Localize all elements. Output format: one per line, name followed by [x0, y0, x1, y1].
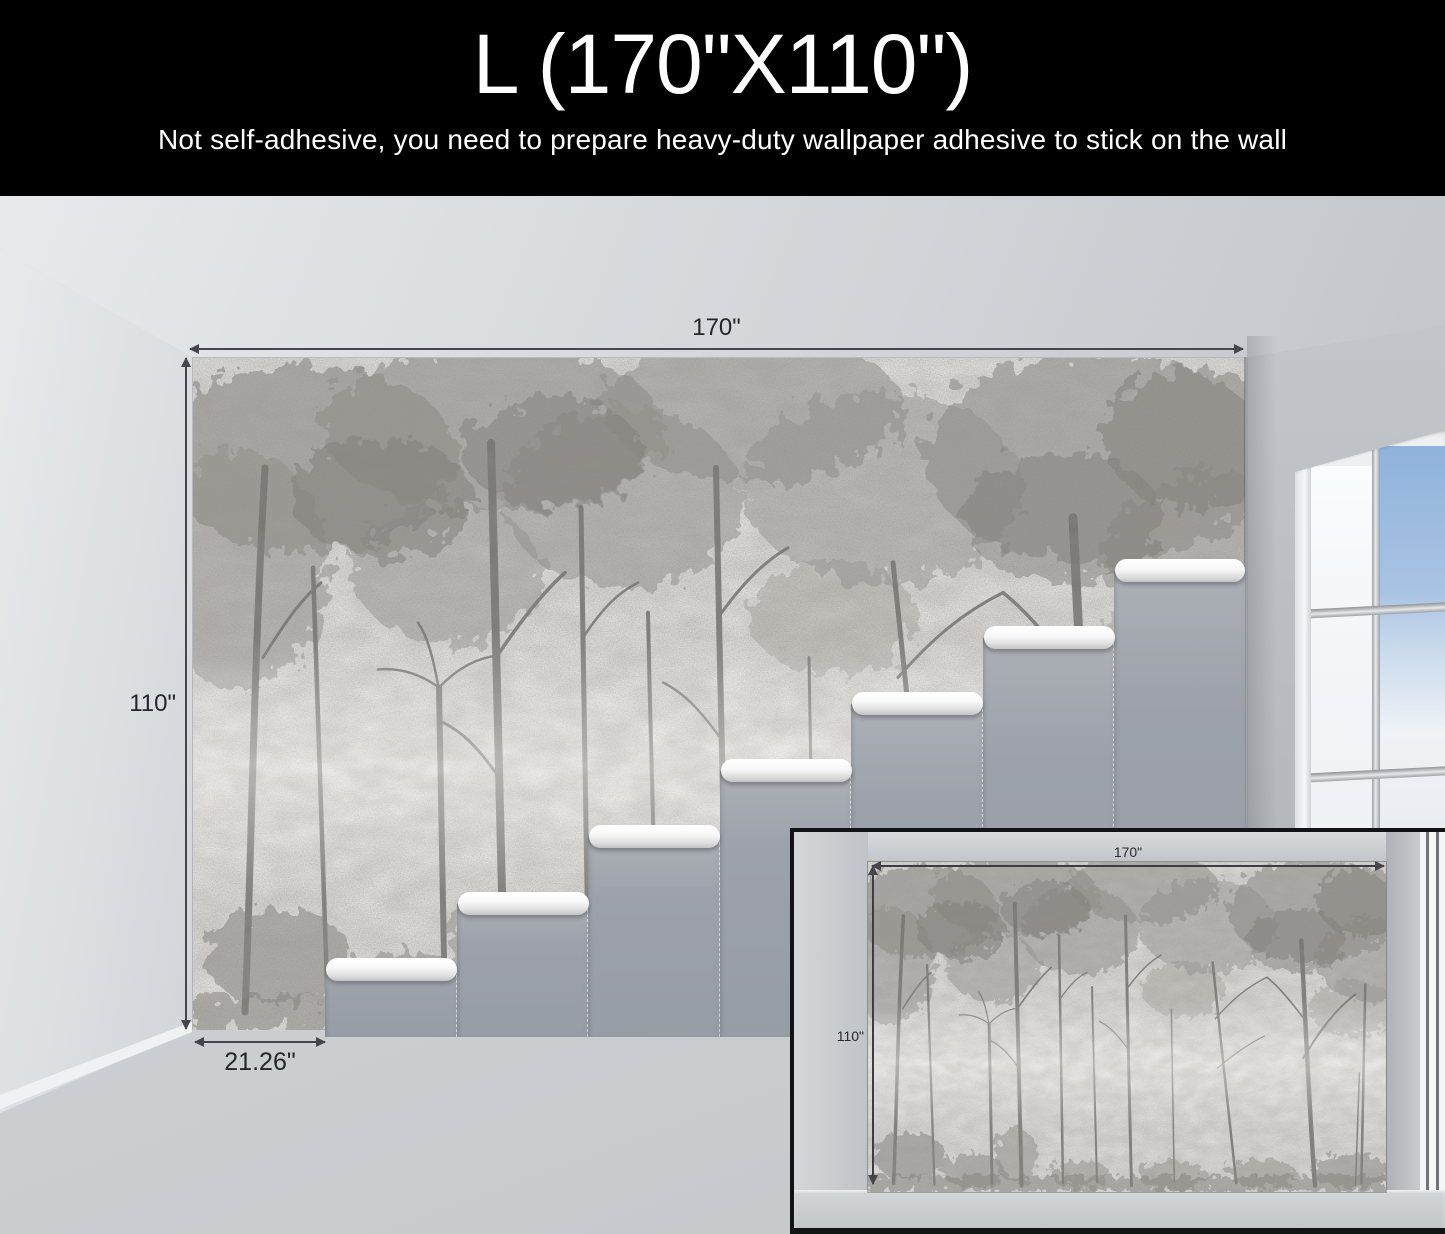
inset-window: [1420, 832, 1445, 1192]
stair-tread: [458, 892, 589, 915]
stair-tread: [589, 825, 720, 848]
inset-window-bar: [1426, 832, 1429, 1192]
window-frame-left: [1295, 466, 1311, 828]
width-dimension-line: [190, 348, 1243, 350]
inset-right-wall: [1386, 832, 1420, 1228]
stair-riser: [457, 904, 588, 1037]
inset-floor: [794, 1190, 1445, 1228]
panel-width-dimension-label: 21.26": [180, 1048, 340, 1077]
stair-tread: [1115, 559, 1245, 582]
inset-preview: 170" 110": [790, 828, 1445, 1234]
inset-height-dimension-line: [872, 866, 874, 1184]
stair-tread: [984, 626, 1115, 649]
stair-tread: [326, 958, 457, 981]
product-image: L (170"X110") Not self-adhesive, you nee…: [0, 0, 1445, 1234]
height-dimension-label: 110": [104, 690, 176, 718]
size-title: L (170"X110"): [473, 22, 973, 106]
stair-riser: [588, 837, 720, 1037]
panel-width-dimension-line: [195, 1041, 325, 1043]
adhesive-note: Not self-adhesive, you need to prepare h…: [158, 124, 1287, 156]
inset-mural: [868, 862, 1386, 1192]
inset-width-dimension-line: [872, 865, 1384, 867]
inset-height-dimension-label: 110": [820, 1028, 864, 1044]
height-dimension-line: [185, 358, 187, 1029]
header-banner: L (170"X110") Not self-adhesive, you nee…: [0, 0, 1445, 196]
inset-width-dimension-label: 170": [872, 844, 1384, 860]
stair-tread: [852, 692, 983, 715]
room-scene: 170" 110" 21.26" 170" 110": [0, 196, 1445, 1234]
stair-tread: [721, 759, 852, 782]
inset-window-bar: [1436, 832, 1439, 1192]
window: [1295, 426, 1445, 828]
width-dimension-label: 170": [190, 314, 1243, 342]
